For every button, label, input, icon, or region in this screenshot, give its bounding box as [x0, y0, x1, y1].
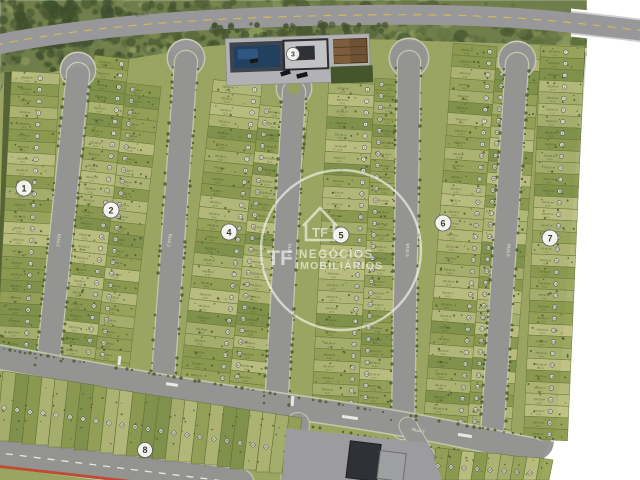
- svg-text:5: 5: [338, 230, 343, 240]
- svg-text:3: 3: [291, 52, 295, 59]
- svg-text:IMOBILIÁRIOS: IMOBILIÁRIOS: [296, 259, 383, 272]
- svg-text:TF: TF: [267, 247, 293, 270]
- svg-text:6: 6: [440, 218, 445, 228]
- svg-text:1: 1: [21, 183, 26, 193]
- svg-text:2: 2: [108, 205, 113, 215]
- svg-text:7: 7: [547, 233, 552, 243]
- svg-text:4: 4: [226, 227, 231, 237]
- svg-text:TF: TF: [312, 225, 328, 240]
- svg-text:8: 8: [142, 445, 147, 455]
